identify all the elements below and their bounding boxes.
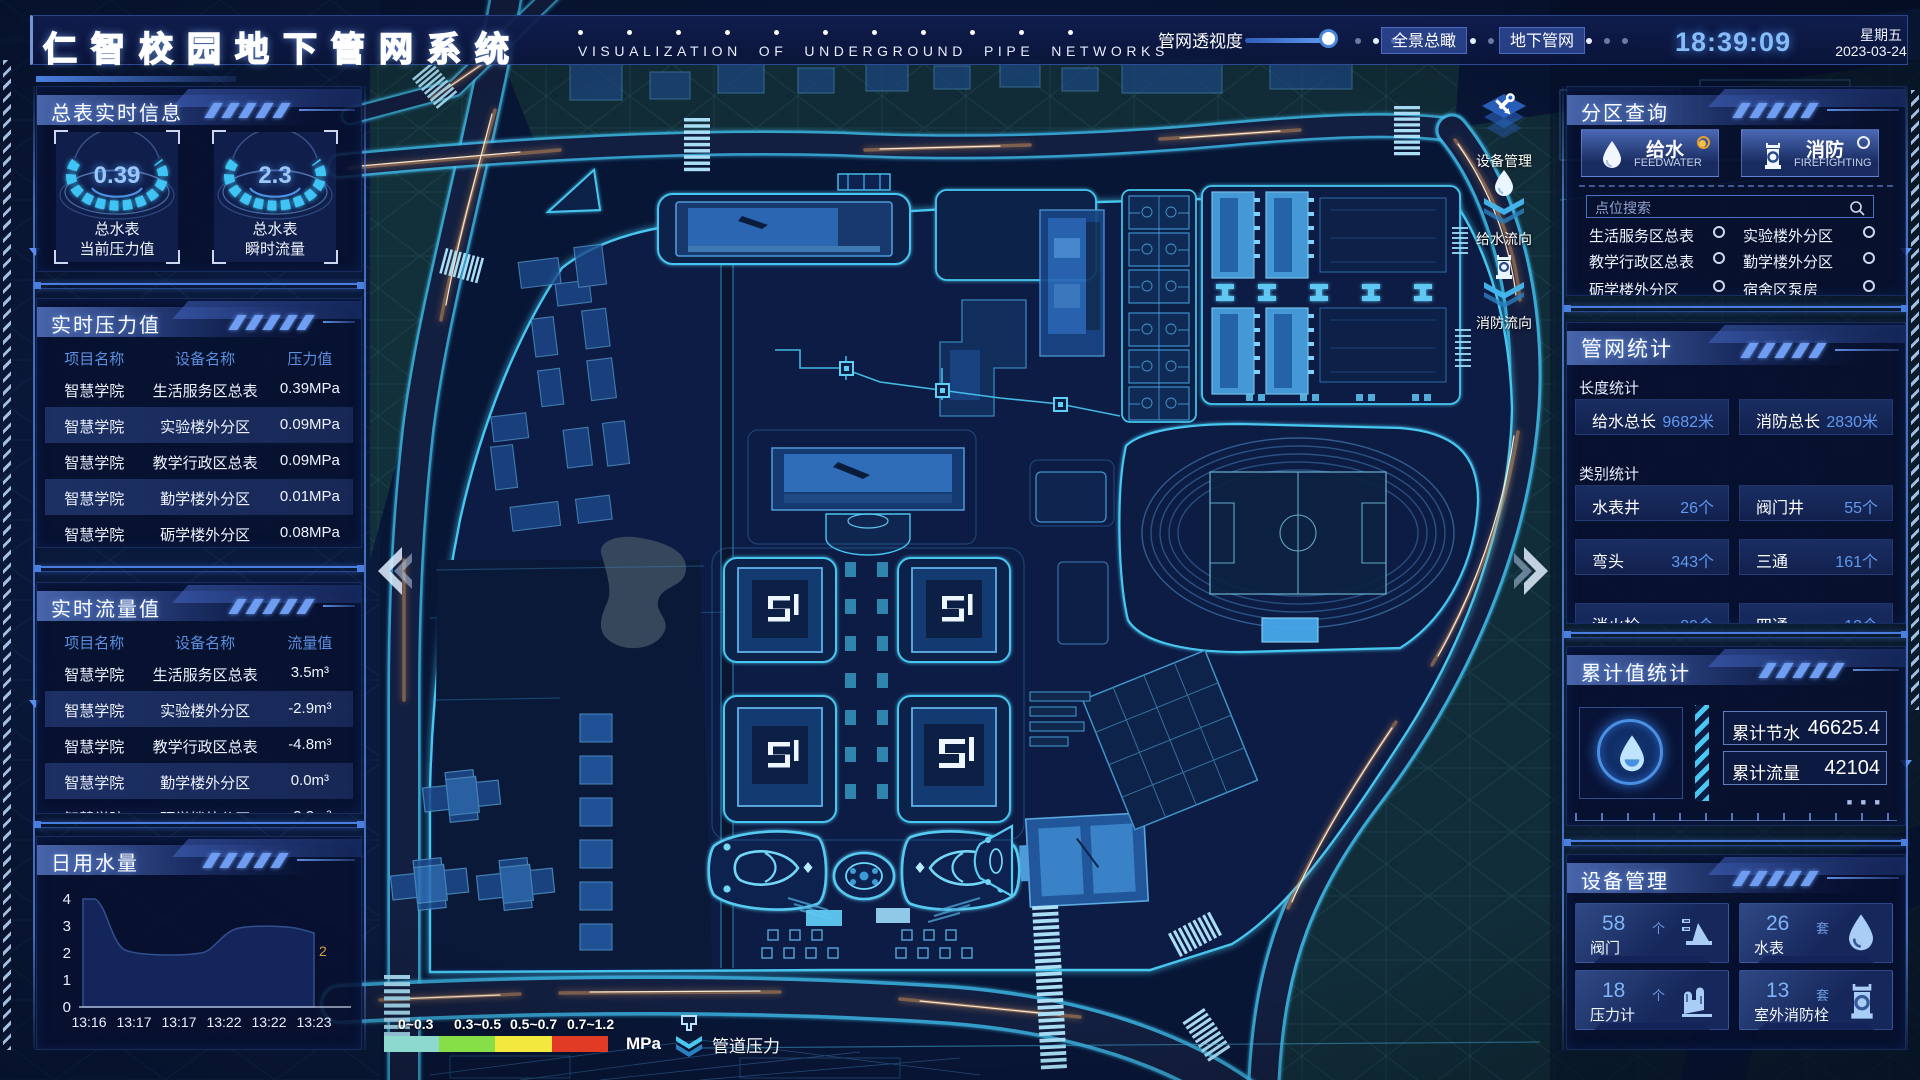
svg-text:13:23: 13:23 [296, 1014, 331, 1030]
svg-text:2: 2 [319, 943, 327, 959]
svg-text:0: 0 [63, 999, 71, 1016]
svg-text:2: 2 [63, 945, 71, 962]
svg-text:13:16: 13:16 [71, 1014, 106, 1030]
svg-text:13:17: 13:17 [161, 1014, 196, 1030]
svg-text:4: 4 [63, 891, 71, 908]
svg-text:1: 1 [63, 972, 71, 989]
svg-text:13:22: 13:22 [251, 1014, 286, 1030]
svg-text:13:22: 13:22 [206, 1014, 241, 1030]
svg-text:3: 3 [63, 918, 71, 935]
svg-text:13:17: 13:17 [116, 1014, 151, 1030]
